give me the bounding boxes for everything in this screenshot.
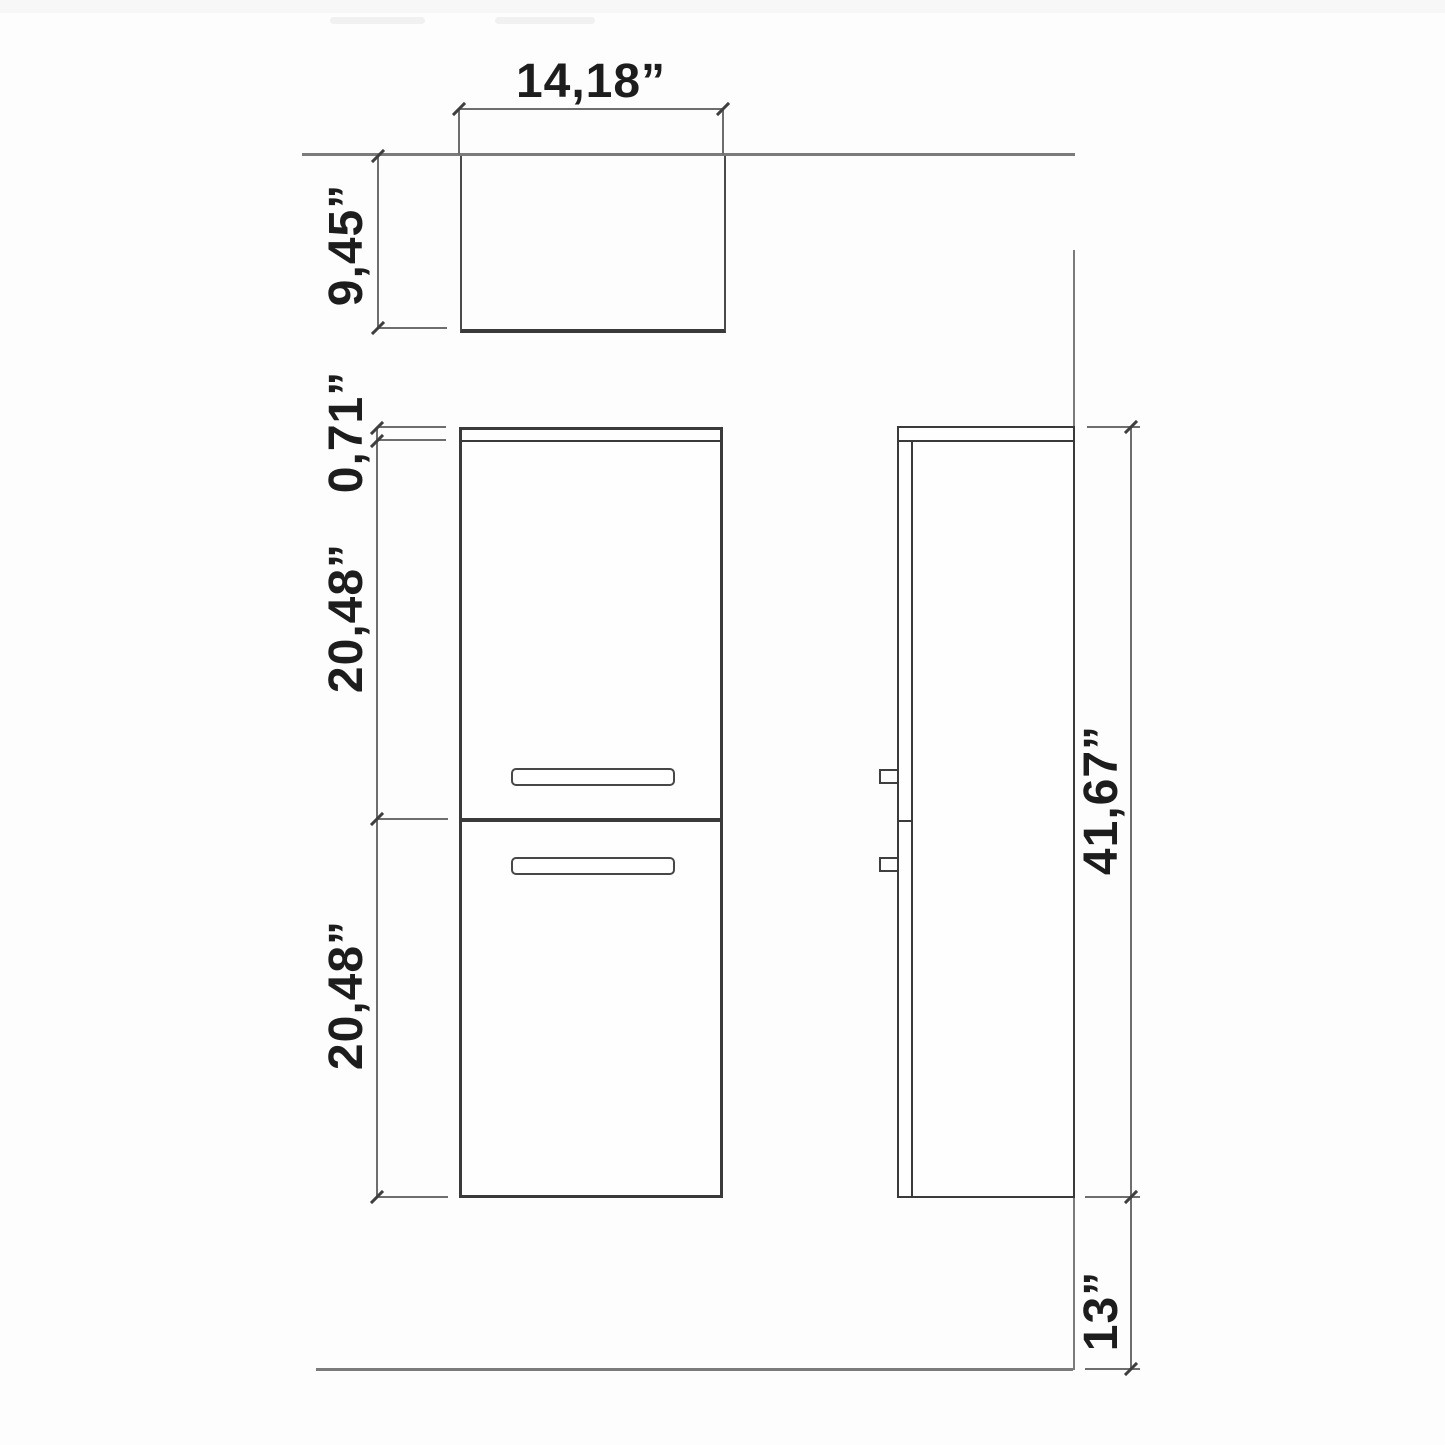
dim-label-top-depth: 9,45” xyxy=(323,184,371,306)
upper-door-handle xyxy=(511,768,675,786)
dim-ext-front-topcap-b xyxy=(377,439,446,441)
dim-ext-top-depth-bottom xyxy=(377,327,447,329)
dim-ext-front-bottom xyxy=(377,1196,448,1198)
dim-line-front-left xyxy=(376,427,378,1198)
upper-door-handle-side xyxy=(879,769,897,784)
side-door-panel-line xyxy=(911,441,913,1197)
front-view-outline xyxy=(459,427,723,1198)
dim-ext-front-topcap-a xyxy=(377,426,446,428)
dim-line-side-right xyxy=(1130,426,1132,1370)
top-view-outline xyxy=(460,156,726,333)
side-top-cap-line xyxy=(898,440,1074,442)
dim-label-front-upper-door: 20,48” xyxy=(323,543,371,693)
dim-label-front-lower-door: 20,48” xyxy=(323,920,371,1070)
dim-ext-front-split xyxy=(377,818,448,820)
artifact-smudge xyxy=(330,17,425,24)
cabinet-dimension-drawing: 14,18” 9,45” 0,71” 20,48” 20,48” 41,67” … xyxy=(0,0,1445,1445)
front-door-split-line xyxy=(459,818,723,822)
side-view-outline xyxy=(897,426,1075,1198)
floor-line xyxy=(316,1368,1073,1371)
dim-label-top-width: 14,18” xyxy=(516,58,666,106)
artifact-smudge xyxy=(495,17,595,24)
dim-ext-top-width-left xyxy=(458,108,460,155)
dim-line-top-depth xyxy=(377,155,379,329)
dim-line-top-width xyxy=(459,108,723,110)
scan-band xyxy=(0,0,1445,13)
lower-door-handle-side xyxy=(879,857,897,872)
dim-label-side-height: 41,67” xyxy=(1078,725,1126,875)
lower-door-handle xyxy=(511,857,675,875)
dim-label-floor-clearance: 13” xyxy=(1078,1271,1126,1351)
dim-ext-top-width-right xyxy=(722,108,724,155)
front-top-cap-line xyxy=(460,440,722,442)
dim-label-front-top-panel: 0,71” xyxy=(323,371,371,493)
side-door-split-mark xyxy=(897,820,913,822)
